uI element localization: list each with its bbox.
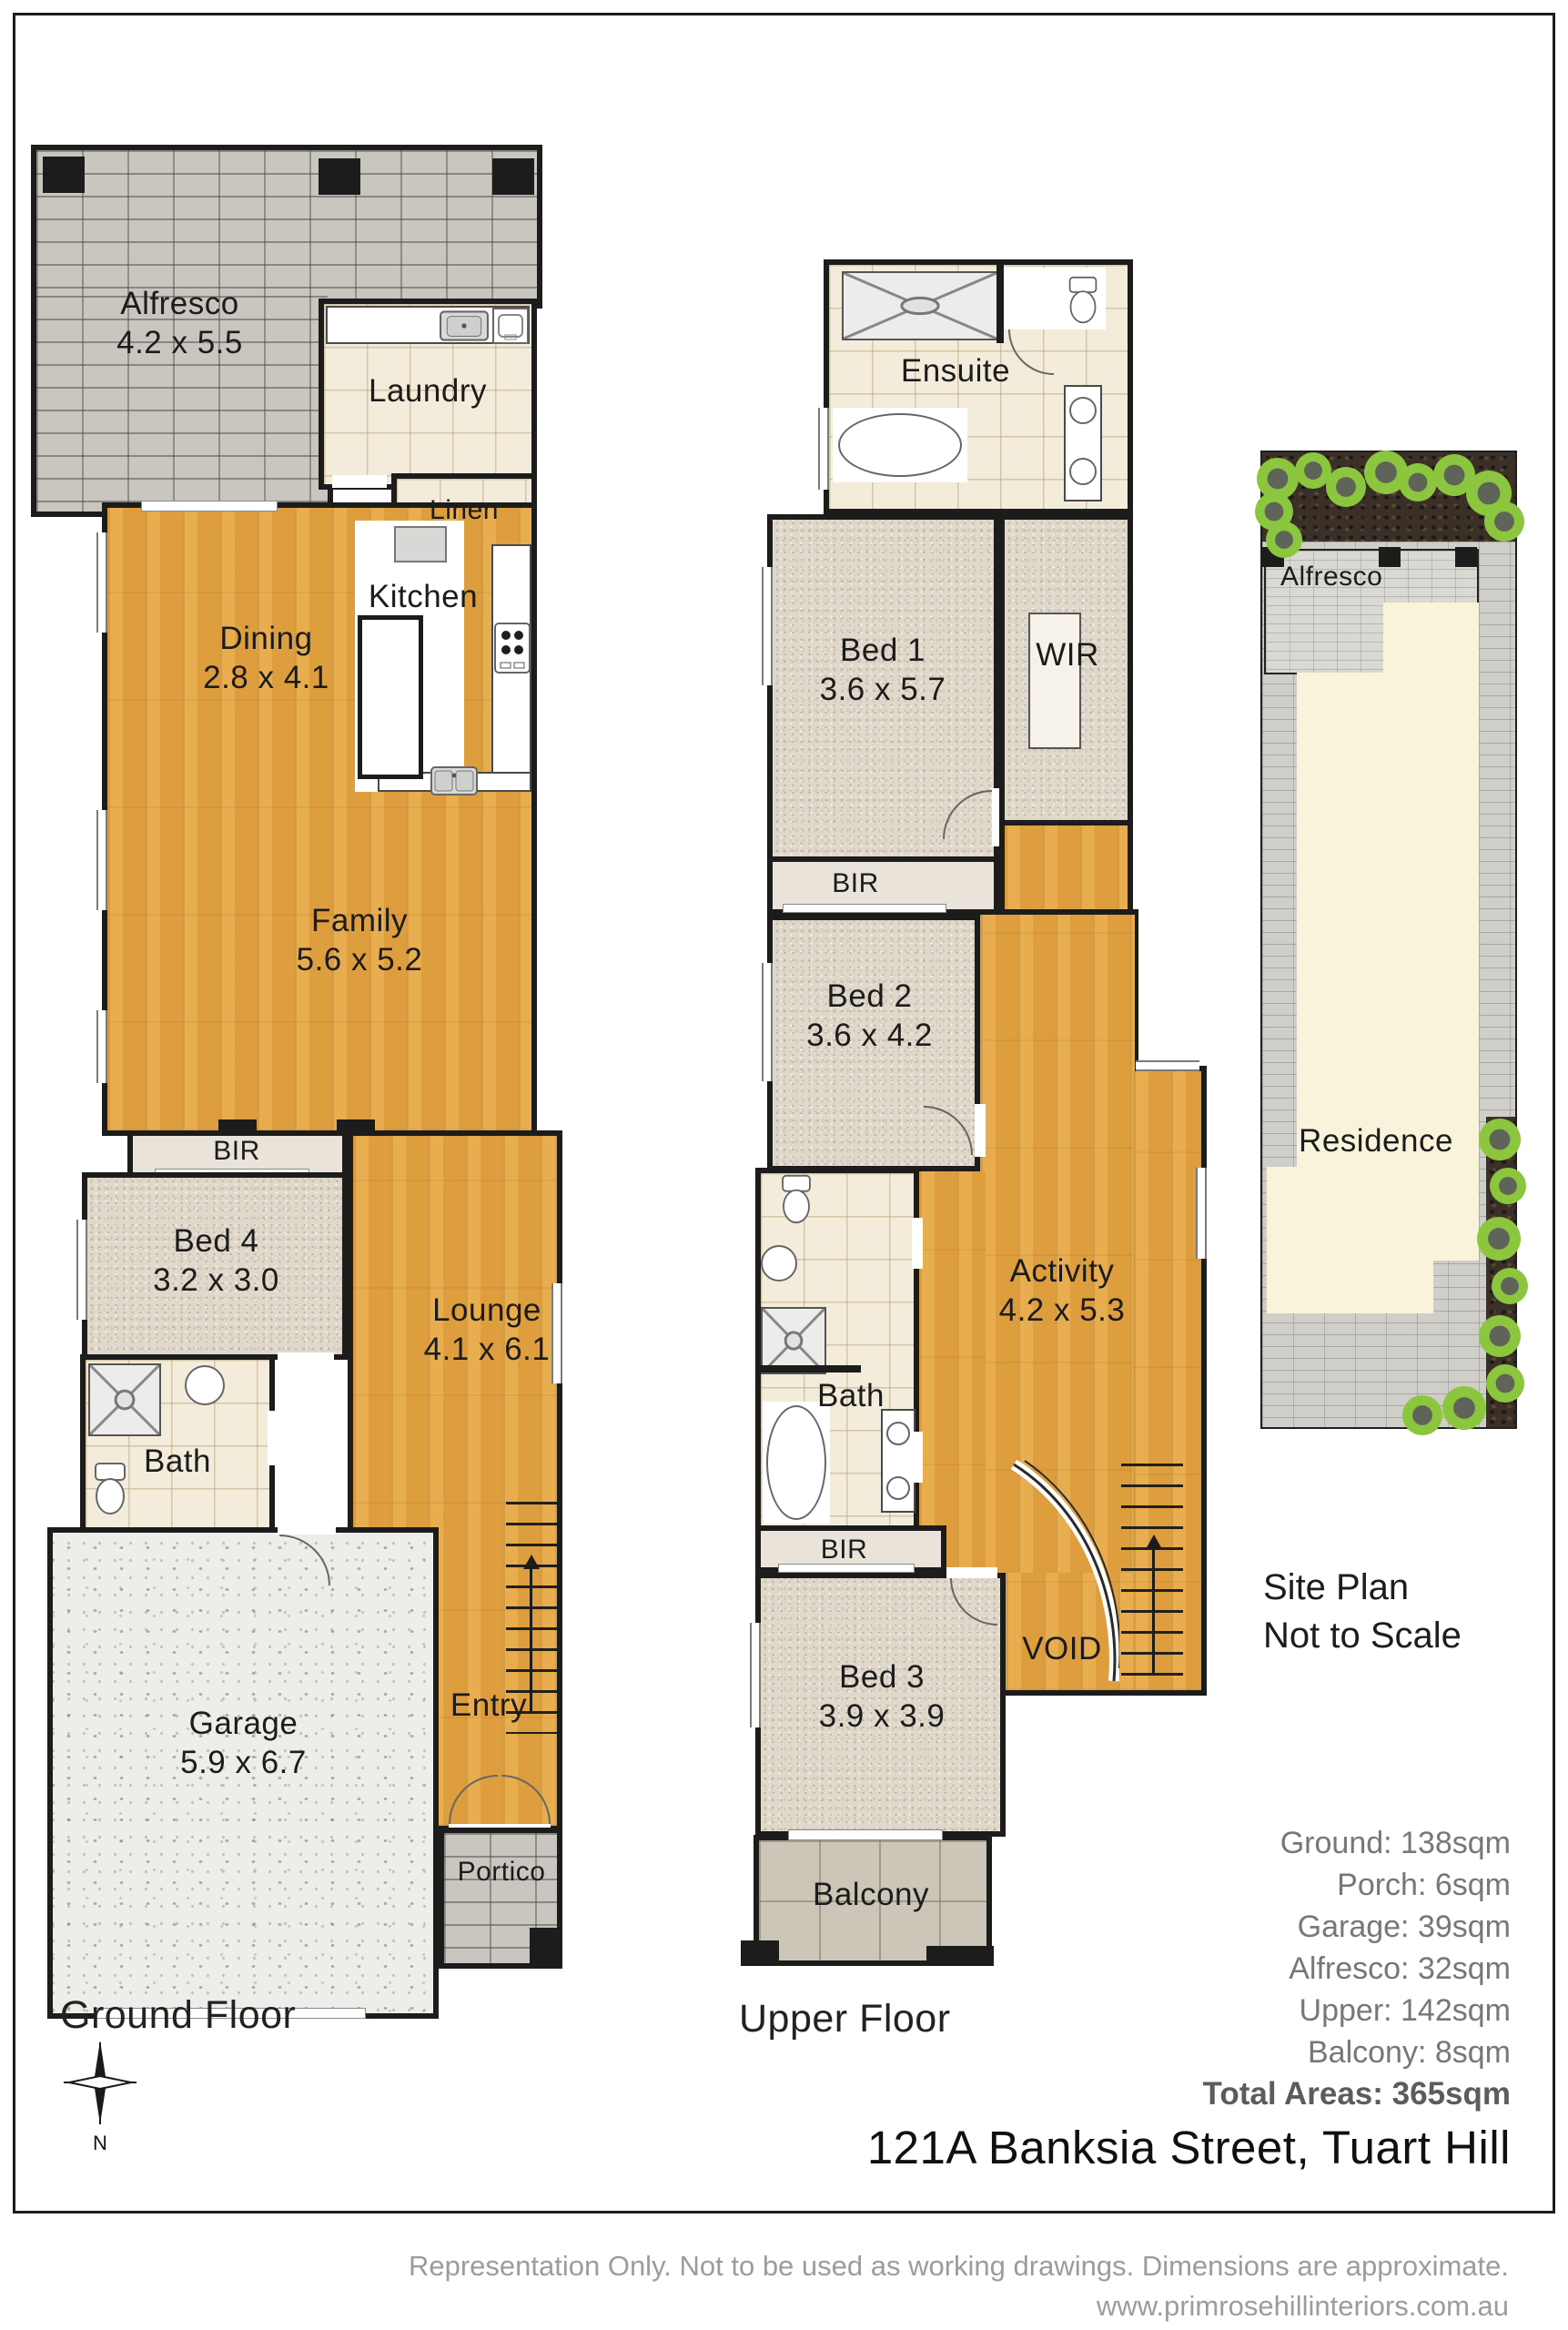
basin-icon <box>886 1422 910 1445</box>
property-address: 121A Banksia Street, Tuart Hill <box>582 2121 1511 2174</box>
window <box>96 1010 107 1083</box>
balcony-sliding-door <box>788 1829 943 1840</box>
bed2-door-gap <box>975 1104 986 1157</box>
shower-icon <box>88 1363 161 1436</box>
upper-floor-plan: Ensuite Bed 13.6 x 5.7 WIR BIR Bed 23.6 … <box>728 253 1224 2037</box>
basin-icon <box>1069 397 1097 424</box>
ground-floor-plan: Alfresco 4.2 x 5.5 Laundry Linen Kitchen… <box>32 146 571 2039</box>
shower-icon <box>761 1307 826 1374</box>
area-summary: Ground: 138sqm Porch: 6sqm Garage: 39sqm… <box>1047 1822 1511 2115</box>
toilet-icon <box>92 1462 128 1516</box>
site-alfresco-label: Alfresco <box>1273 560 1435 593</box>
bush-icon <box>1492 1268 1528 1304</box>
stairs-arrow-head <box>1146 1535 1162 1549</box>
washer-icon <box>492 308 529 344</box>
toilet-icon <box>779 1174 814 1225</box>
wc-door-gap <box>912 1218 923 1269</box>
bath-upper-label: Bath <box>801 1376 901 1415</box>
window <box>762 963 773 1081</box>
void-label: VOID <box>1012 1629 1112 1668</box>
bed4-door-gap <box>278 1352 334 1365</box>
footer: Representation Only. Not to be used as w… <box>364 2246 1509 2326</box>
laundry-door-gap <box>332 475 387 488</box>
bush-icon <box>1477 1217 1521 1261</box>
toilet-icon <box>1067 275 1099 326</box>
floorplan-page: Alfresco 4.2 x 5.5 Laundry Linen Kitchen… <box>0 0 1568 2330</box>
area-row: Porch: 6sqm <box>1047 1864 1511 1906</box>
balcony-post <box>741 1940 779 1966</box>
laundry-sink-icon <box>440 309 489 342</box>
fridge-icon <box>394 526 447 562</box>
alfresco-sliding-door <box>141 501 278 512</box>
site-residence-label: Residence <box>1276 1121 1476 1160</box>
ensuite-shower-icon <box>842 271 998 340</box>
bush-icon <box>1486 1364 1524 1403</box>
bath-door-gap <box>912 1432 923 1483</box>
window <box>762 567 773 685</box>
bush-icon <box>1490 1168 1526 1204</box>
basin-icon <box>761 1245 797 1281</box>
window <box>96 532 107 633</box>
window <box>1196 1168 1207 1259</box>
window <box>750 1623 761 1727</box>
bush-icon <box>1484 501 1524 542</box>
alfresco-post <box>319 158 360 195</box>
wc-wall <box>996 265 1004 343</box>
site-plan: Alfresco Residence <box>1260 451 1517 1429</box>
bush-icon <box>1266 522 1302 558</box>
basin-icon <box>1069 458 1097 485</box>
site-post <box>1455 547 1477 567</box>
balcony-post <box>926 1946 994 1966</box>
bed1-label: Bed 13.6 x 5.7 <box>805 631 960 710</box>
area-row: Garage: 39sqm <box>1047 1906 1511 1948</box>
ensuite-label: Ensuite <box>887 351 1024 390</box>
bathtub-icon <box>766 1405 826 1520</box>
laundry-label: Laundry <box>346 371 510 410</box>
bush-icon <box>1399 463 1437 501</box>
bush-icon <box>1479 1119 1521 1160</box>
window <box>76 1220 87 1320</box>
family-label: Family5.6 x 5.2 <box>287 901 432 980</box>
area-row: Upper: 142sqm <box>1047 1990 1511 2031</box>
linen-label: Linen <box>396 493 532 527</box>
compass-icon: N <box>56 2039 144 2153</box>
bath-door-gap <box>268 1411 280 1465</box>
garage-label: Garage5.9 x 6.7 <box>164 1704 323 1783</box>
caption-line1: Site Plan <box>1263 1564 1462 1612</box>
lounge-label: Lounge4.1 x 6.1 <box>410 1291 564 1370</box>
window <box>1136 1060 1199 1071</box>
bir2-label: BIR <box>805 1533 883 1566</box>
bir1-label: BIR <box>819 866 892 900</box>
alfresco-post <box>492 158 534 195</box>
activity-label: Activity4.2 x 5.3 <box>989 1251 1135 1331</box>
alfresco-label: Alfresco 4.2 x 5.5 <box>91 284 268 363</box>
hall-floor <box>919 1171 986 1573</box>
kitchen-label: Kitchen <box>355 577 491 616</box>
bathtub-icon <box>838 413 962 477</box>
footer-website: www.primrosehillinteriors.com.au <box>364 2286 1509 2326</box>
footer-disclaimer: Representation Only. Not to be used as w… <box>364 2246 1509 2286</box>
room-dims: 4.2 x 5.5 <box>91 323 268 362</box>
bed3-label: Bed 33.9 x 3.9 <box>799 1657 965 1737</box>
balcony-label: Balcony <box>812 1875 930 1914</box>
kitchen-island <box>358 615 423 779</box>
area-row: Balcony: 8sqm <box>1047 2031 1511 2073</box>
bath-label: Bath <box>127 1442 228 1481</box>
entry-label: Entry <box>443 1686 534 1725</box>
area-row: Ground: 138sqm <box>1047 1822 1511 1864</box>
wir-label: WIR <box>1017 635 1118 674</box>
bush-icon <box>1326 467 1366 507</box>
window <box>818 408 829 490</box>
bath-wall <box>761 1365 861 1373</box>
bush-icon <box>1402 1395 1442 1435</box>
area-total: Total Areas: 365sqm <box>1047 2073 1511 2115</box>
caption-line2: Not to Scale <box>1263 1612 1462 1660</box>
dining-label: Dining2.8 x 4.1 <box>196 619 337 698</box>
bed3-door-gap <box>946 1567 997 1578</box>
garage-door-gap <box>278 1522 336 1535</box>
bir-label: BIR <box>177 1134 296 1168</box>
stairs-arrow <box>1152 1545 1155 1673</box>
stairs-arrow-head <box>523 1555 540 1569</box>
ground-floor-title: Ground Floor <box>60 1993 296 2038</box>
bush-icon <box>1442 1386 1486 1430</box>
upper-floor-title: Upper Floor <box>739 1997 951 2041</box>
window <box>96 810 107 910</box>
cooktop-icon <box>494 623 531 674</box>
hall-landing <box>999 820 1133 917</box>
room-alfresco <box>36 150 537 302</box>
basin-icon <box>886 1476 910 1500</box>
alfresco-post <box>43 157 85 193</box>
kitchen-sink-icon <box>430 766 478 795</box>
wir-shelf <box>1028 613 1081 749</box>
room-name: Alfresco <box>91 284 268 323</box>
bir1-sliding-door <box>783 904 946 913</box>
portico-label: Portico <box>446 1855 557 1889</box>
basin-icon <box>185 1365 225 1405</box>
bush-icon <box>1479 1315 1521 1357</box>
area-row: Alfresco: 32sqm <box>1047 1948 1511 1990</box>
compass-n-label: N <box>93 2132 107 2153</box>
bed2-label: Bed 23.6 x 4.2 <box>790 977 949 1056</box>
bed4-label: Bed 43.2 x 3.0 <box>141 1221 291 1301</box>
portico-post <box>530 1928 562 1969</box>
site-plan-caption: Site Plan Not to Scale <box>1263 1564 1462 1660</box>
